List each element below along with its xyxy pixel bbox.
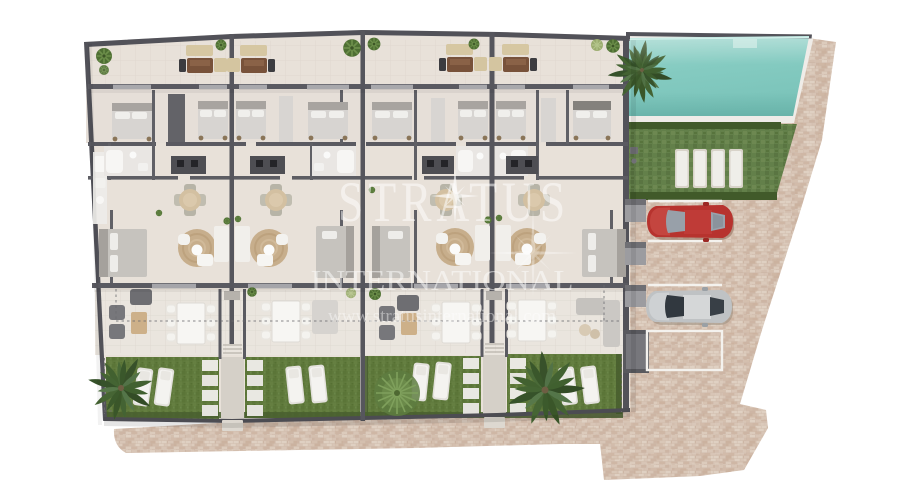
svg-text:www.stratusinternational.com: www.stratusinternational.com: [328, 306, 556, 327]
